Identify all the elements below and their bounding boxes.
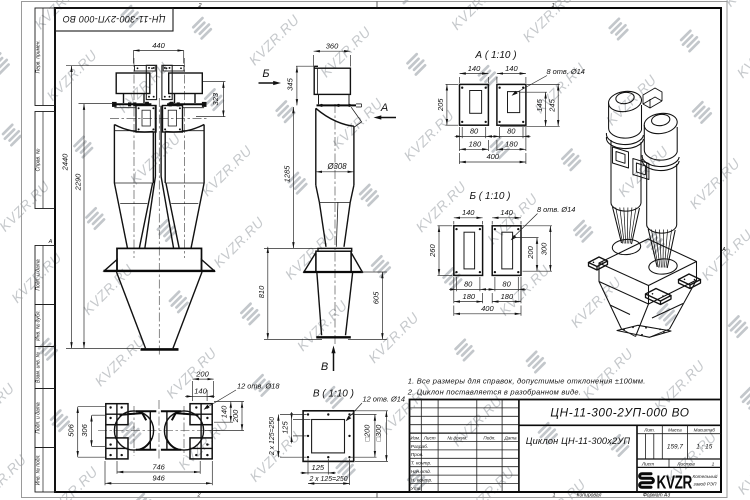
- svg-text:300: 300: [540, 242, 549, 255]
- svg-text:Копировал: Копировал: [577, 493, 602, 499]
- svg-text:306: 306: [80, 423, 89, 436]
- svg-text:А: А: [48, 239, 53, 245]
- svg-text:80: 80: [464, 280, 473, 289]
- svg-text:200: 200: [195, 369, 209, 378]
- svg-text:А: А: [380, 102, 388, 114]
- svg-text:Разраб.: Разраб.: [411, 444, 428, 450]
- svg-text:Взам. инв. №: Взам. инв. №: [35, 351, 41, 383]
- svg-text:Лист: Лист: [641, 461, 654, 467]
- svg-text:1: 1: [712, 461, 715, 467]
- svg-text:ЦН-11-300-2УП-000 ВО: ЦН-11-300-2УП-000 ВО: [63, 14, 166, 24]
- svg-text:140: 140: [462, 208, 475, 217]
- svg-text:506: 506: [66, 423, 75, 436]
- svg-text:125: 125: [280, 421, 289, 434]
- svg-text:12 отв. Ø18: 12 отв. Ø18: [237, 382, 280, 391]
- svg-text:80: 80: [470, 127, 479, 136]
- svg-text:400: 400: [486, 152, 499, 161]
- svg-text:Лист: Лист: [423, 435, 436, 440]
- svg-text:Циклон ЦН-11-300х2УП: Циклон ЦН-11-300х2УП: [526, 436, 631, 446]
- svg-text:2440: 2440: [61, 153, 70, 172]
- svg-text:Н. контр.: Н. контр.: [411, 477, 433, 483]
- svg-text:205: 205: [436, 98, 445, 112]
- svg-text:180: 180: [505, 140, 518, 149]
- svg-text:Формат А3: Формат А3: [643, 493, 671, 499]
- svg-text:605: 605: [371, 291, 380, 304]
- svg-text:Инв. № дубл.: Инв. № дубл.: [35, 310, 41, 341]
- svg-text:2: 2: [197, 3, 201, 9]
- svg-text:1285: 1285: [282, 165, 291, 183]
- svg-text:159,7: 159,7: [667, 444, 683, 451]
- svg-text:260: 260: [428, 244, 437, 258]
- svg-text:2290: 2290: [73, 173, 82, 192]
- svg-text:810: 810: [257, 285, 266, 298]
- svg-text:80: 80: [502, 280, 511, 289]
- svg-text:8 отв. Ø14: 8 отв. Ø14: [547, 67, 585, 76]
- svg-text:8 отв. Ø14: 8 отв. Ø14: [537, 205, 575, 214]
- svg-text:Лит.: Лит.: [643, 428, 655, 433]
- svg-text:245: 245: [547, 98, 556, 112]
- svg-text:Изм.: Изм.: [411, 435, 421, 440]
- svg-text:1: 1: [552, 493, 555, 499]
- svg-text:Масса: Масса: [668, 428, 682, 433]
- svg-text:200: 200: [526, 245, 535, 259]
- svg-text:12 отв. Ø14: 12 отв. Ø14: [363, 395, 405, 404]
- svg-text:Пров.: Пров.: [411, 452, 424, 458]
- svg-text:В ( 1:10 ): В ( 1:10 ): [313, 389, 354, 400]
- svg-text:Справ. №: Справ. №: [35, 148, 41, 171]
- svg-text:□200: □200: [363, 425, 372, 442]
- svg-text:В: В: [321, 361, 328, 373]
- svg-text:Б: Б: [262, 68, 269, 80]
- svg-text:Нач.отд.: Нач.отд.: [411, 469, 431, 475]
- svg-text:440: 440: [152, 41, 165, 50]
- svg-text:125: 125: [312, 463, 325, 472]
- svg-text:2 х 125=250: 2 х 125=250: [308, 476, 347, 483]
- svg-text:Т. контр.: Т. контр.: [411, 461, 432, 467]
- svg-text:Подп. и дата: Подп. и дата: [35, 259, 41, 291]
- svg-text:323: 323: [211, 92, 220, 105]
- svg-text:180: 180: [469, 140, 482, 149]
- svg-text:145: 145: [535, 98, 544, 111]
- svg-text:180: 180: [501, 292, 514, 301]
- svg-text:завод РЭП: завод РЭП: [693, 481, 718, 486]
- svg-text:2: 2: [196, 493, 200, 499]
- svg-text:Ø308: Ø308: [326, 162, 347, 171]
- svg-text:140: 140: [220, 405, 229, 418]
- svg-text:140: 140: [468, 64, 481, 73]
- svg-text:Б ( 1:10 ): Б ( 1:10 ): [470, 191, 511, 202]
- svg-text:360: 360: [326, 42, 339, 51]
- svg-text:946: 946: [152, 474, 165, 483]
- svg-text:140: 140: [500, 208, 513, 217]
- svg-text:□300: □300: [374, 425, 383, 442]
- svg-text:KVZR: KVZR: [657, 473, 693, 493]
- svg-text:Котельный: Котельный: [693, 473, 718, 479]
- svg-text:200: 200: [231, 409, 240, 423]
- svg-text:2 х 125=250: 2 х 125=250: [269, 417, 276, 456]
- svg-text:1: 1: [551, 3, 554, 9]
- svg-text:1. Все размеры для справок: 1. Все размеры для справок, допустимые о…: [408, 376, 646, 385]
- svg-text:140: 140: [194, 387, 207, 396]
- svg-text:400: 400: [481, 304, 494, 313]
- svg-text:Листов: Листов: [676, 461, 695, 467]
- svg-text:140: 140: [505, 64, 518, 73]
- svg-text:Дата: Дата: [503, 435, 517, 440]
- svg-text:1 : 15: 1 : 15: [696, 444, 712, 451]
- svg-text:Подп. и дата: Подп. и дата: [35, 402, 41, 434]
- svg-text:180: 180: [463, 292, 476, 301]
- svg-text:А: А: [721, 247, 726, 253]
- svg-text:2. Циклон поставляется в р: 2. Циклон поставляется в разобранном вид…: [407, 387, 581, 396]
- svg-text:А ( 1:10 ): А ( 1:10 ): [474, 50, 516, 61]
- svg-text:Утв.: Утв.: [411, 486, 422, 492]
- svg-text:№ докум.: № докум.: [447, 435, 467, 440]
- svg-text:345: 345: [286, 77, 295, 90]
- svg-text:Инв. № подл.: Инв. № подл.: [35, 454, 41, 485]
- svg-text:Перв. примен.: Перв. примен.: [35, 40, 41, 73]
- svg-text:Подп.: Подп.: [483, 435, 495, 440]
- svg-text:Масштаб: Масштаб: [694, 428, 716, 433]
- svg-text:746: 746: [152, 462, 165, 471]
- svg-text:ЦН-11-300-2УП-000 ВО: ЦН-11-300-2УП-000 ВО: [550, 405, 689, 419]
- svg-text:80: 80: [507, 127, 516, 136]
